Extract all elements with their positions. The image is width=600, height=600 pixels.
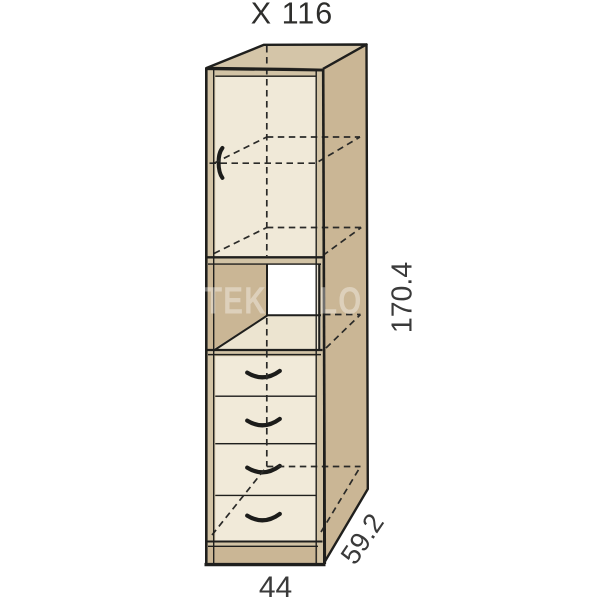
svg-text:170.4: 170.4 (387, 262, 419, 333)
svg-text:44: 44 (259, 571, 292, 600)
svg-text:LO: LO (319, 280, 362, 322)
svg-text:TEK: TEK (204, 280, 267, 322)
svg-text:X 116: X 116 (251, 0, 333, 31)
